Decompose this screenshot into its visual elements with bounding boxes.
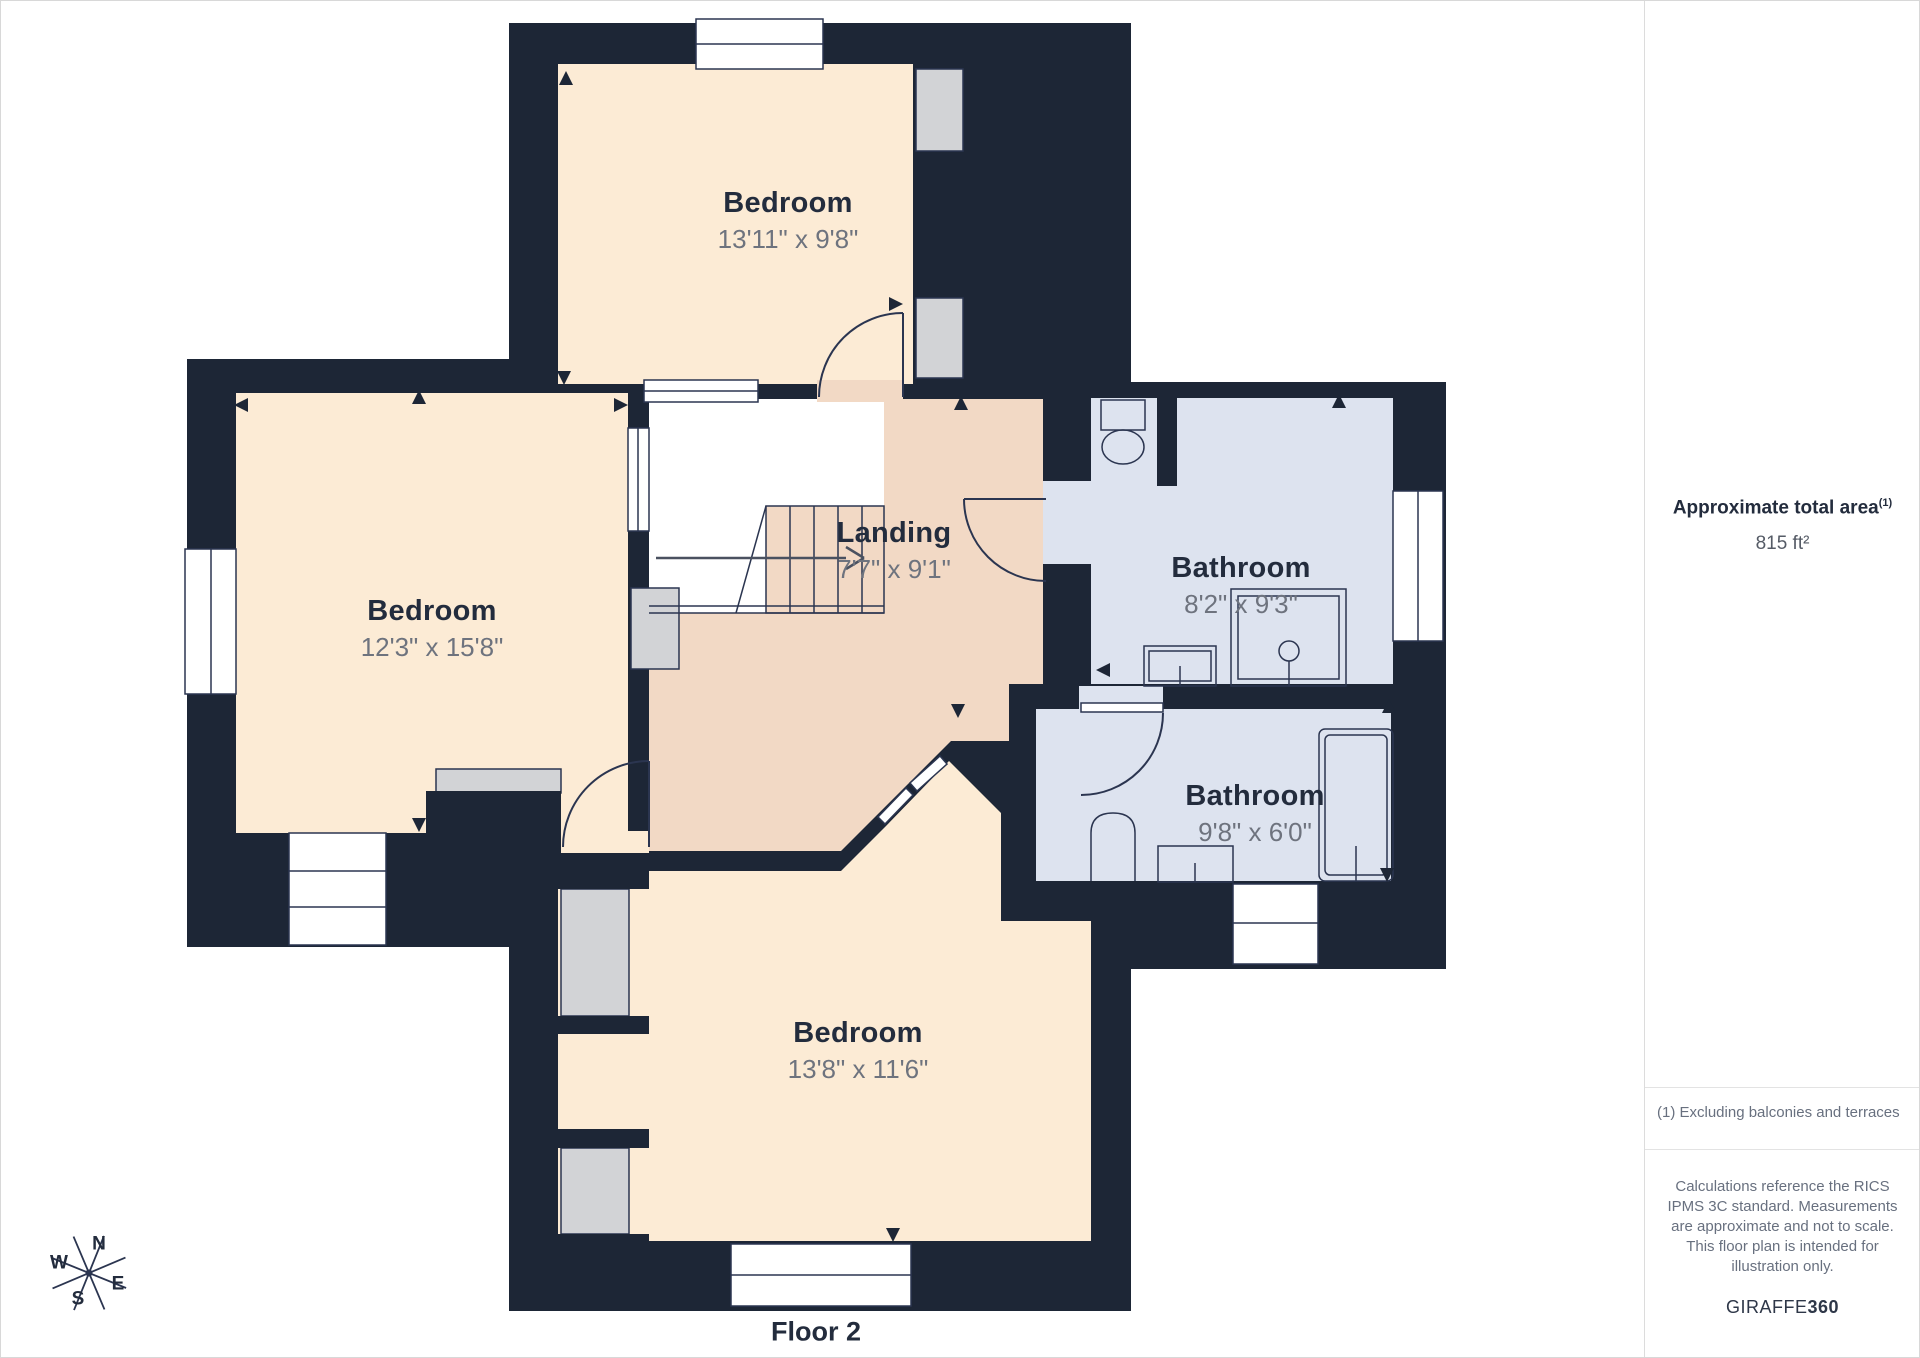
room-label-landing: Landing 7'7" x 9'1": [837, 517, 952, 585]
compass-north-label: N: [92, 1234, 106, 1255]
room-label-bathroom-2: Bathroom 9'8" x 6'0": [1185, 780, 1324, 848]
compass-west-label: W: [50, 1253, 68, 1274]
sidebar-divider: [1645, 1087, 1920, 1088]
brand-logo: GIRAFFE360: [1645, 1297, 1920, 1318]
total-area-label: Approximate total area(1): [1645, 497, 1920, 519]
area-footnote: (1) Excluding balconies and terraces: [1645, 1104, 1920, 1121]
info-sidebar: Approximate total area(1) 815 ft² (1) Ex…: [1644, 1, 1920, 1358]
compass-south-label: S: [72, 1289, 85, 1310]
disclaimer-text: Calculations reference the RICS IPMS 3C …: [1667, 1177, 1899, 1277]
room-dimensions: 13'11" x 9'8": [718, 224, 859, 255]
room-dimensions: 13'8" x 11'6": [788, 1054, 929, 1085]
room-dimensions: 12'3" x 15'8": [361, 632, 504, 663]
sidebar-divider: [1645, 1149, 1920, 1150]
room-label-bedroom-bottom: Bedroom 13'8" x 11'6": [788, 1017, 929, 1085]
room-name: Bathroom: [1171, 552, 1310, 585]
bathroom-1-floor: [1091, 398, 1393, 684]
room-label-bedroom-left: Bedroom 12'3" x 15'8": [361, 595, 504, 663]
room-label-bathroom-1: Bathroom 8'2" x 9'3": [1171, 552, 1310, 620]
room-name: Landing: [837, 517, 952, 550]
brand-suffix: 360: [1807, 1297, 1839, 1317]
floor-plan-canvas: Bedroom 13'11" x 9'8" Bedroom 12'3" x 15…: [1, 1, 1649, 1358]
room-dimensions: 9'8" x 6'0": [1185, 817, 1324, 848]
room-name: Bathroom: [1185, 780, 1324, 813]
compass-east-label: E: [112, 1274, 125, 1295]
room-dimensions: 7'7" x 9'1": [837, 554, 952, 585]
room-dimensions: 8'2" x 9'3": [1171, 589, 1310, 620]
floor-title: Floor 2: [771, 1317, 861, 1348]
room-name: Bedroom: [718, 187, 859, 220]
room-label-bedroom-top: Bedroom 13'11" x 9'8": [718, 187, 859, 255]
room-name: Bedroom: [788, 1017, 929, 1050]
total-area-value: 815 ft²: [1645, 533, 1920, 555]
total-area-label-text: Approximate total area: [1673, 497, 1879, 518]
total-area-block: Approximate total area(1) 815 ft²: [1645, 497, 1920, 555]
room-name: Bedroom: [361, 595, 504, 628]
brand-name: GIRAFFE: [1726, 1297, 1808, 1317]
compass-rose-icon: N W E S: [31, 1216, 171, 1358]
total-area-superscript: (1): [1879, 497, 1892, 509]
floor-plan-page: Bedroom 13'11" x 9'8" Bedroom 12'3" x 15…: [0, 0, 1920, 1358]
